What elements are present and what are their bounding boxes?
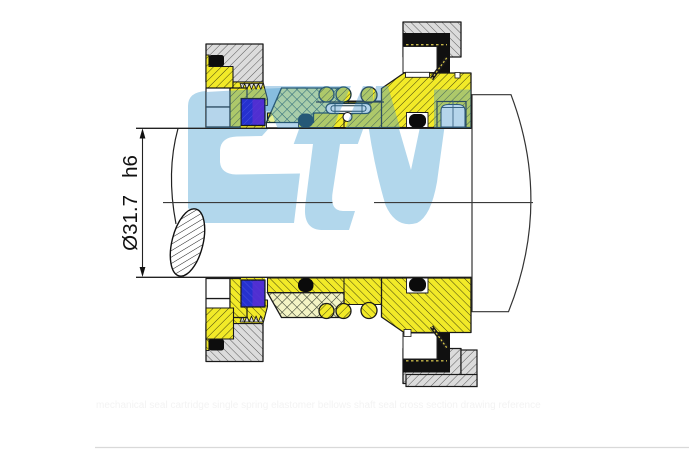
svg-text:Ø31.7 h6: Ø31.7 h6 bbox=[119, 155, 142, 251]
svg-text:mechanical seal cartridge sing: mechanical seal cartridge single spring … bbox=[96, 400, 541, 411]
